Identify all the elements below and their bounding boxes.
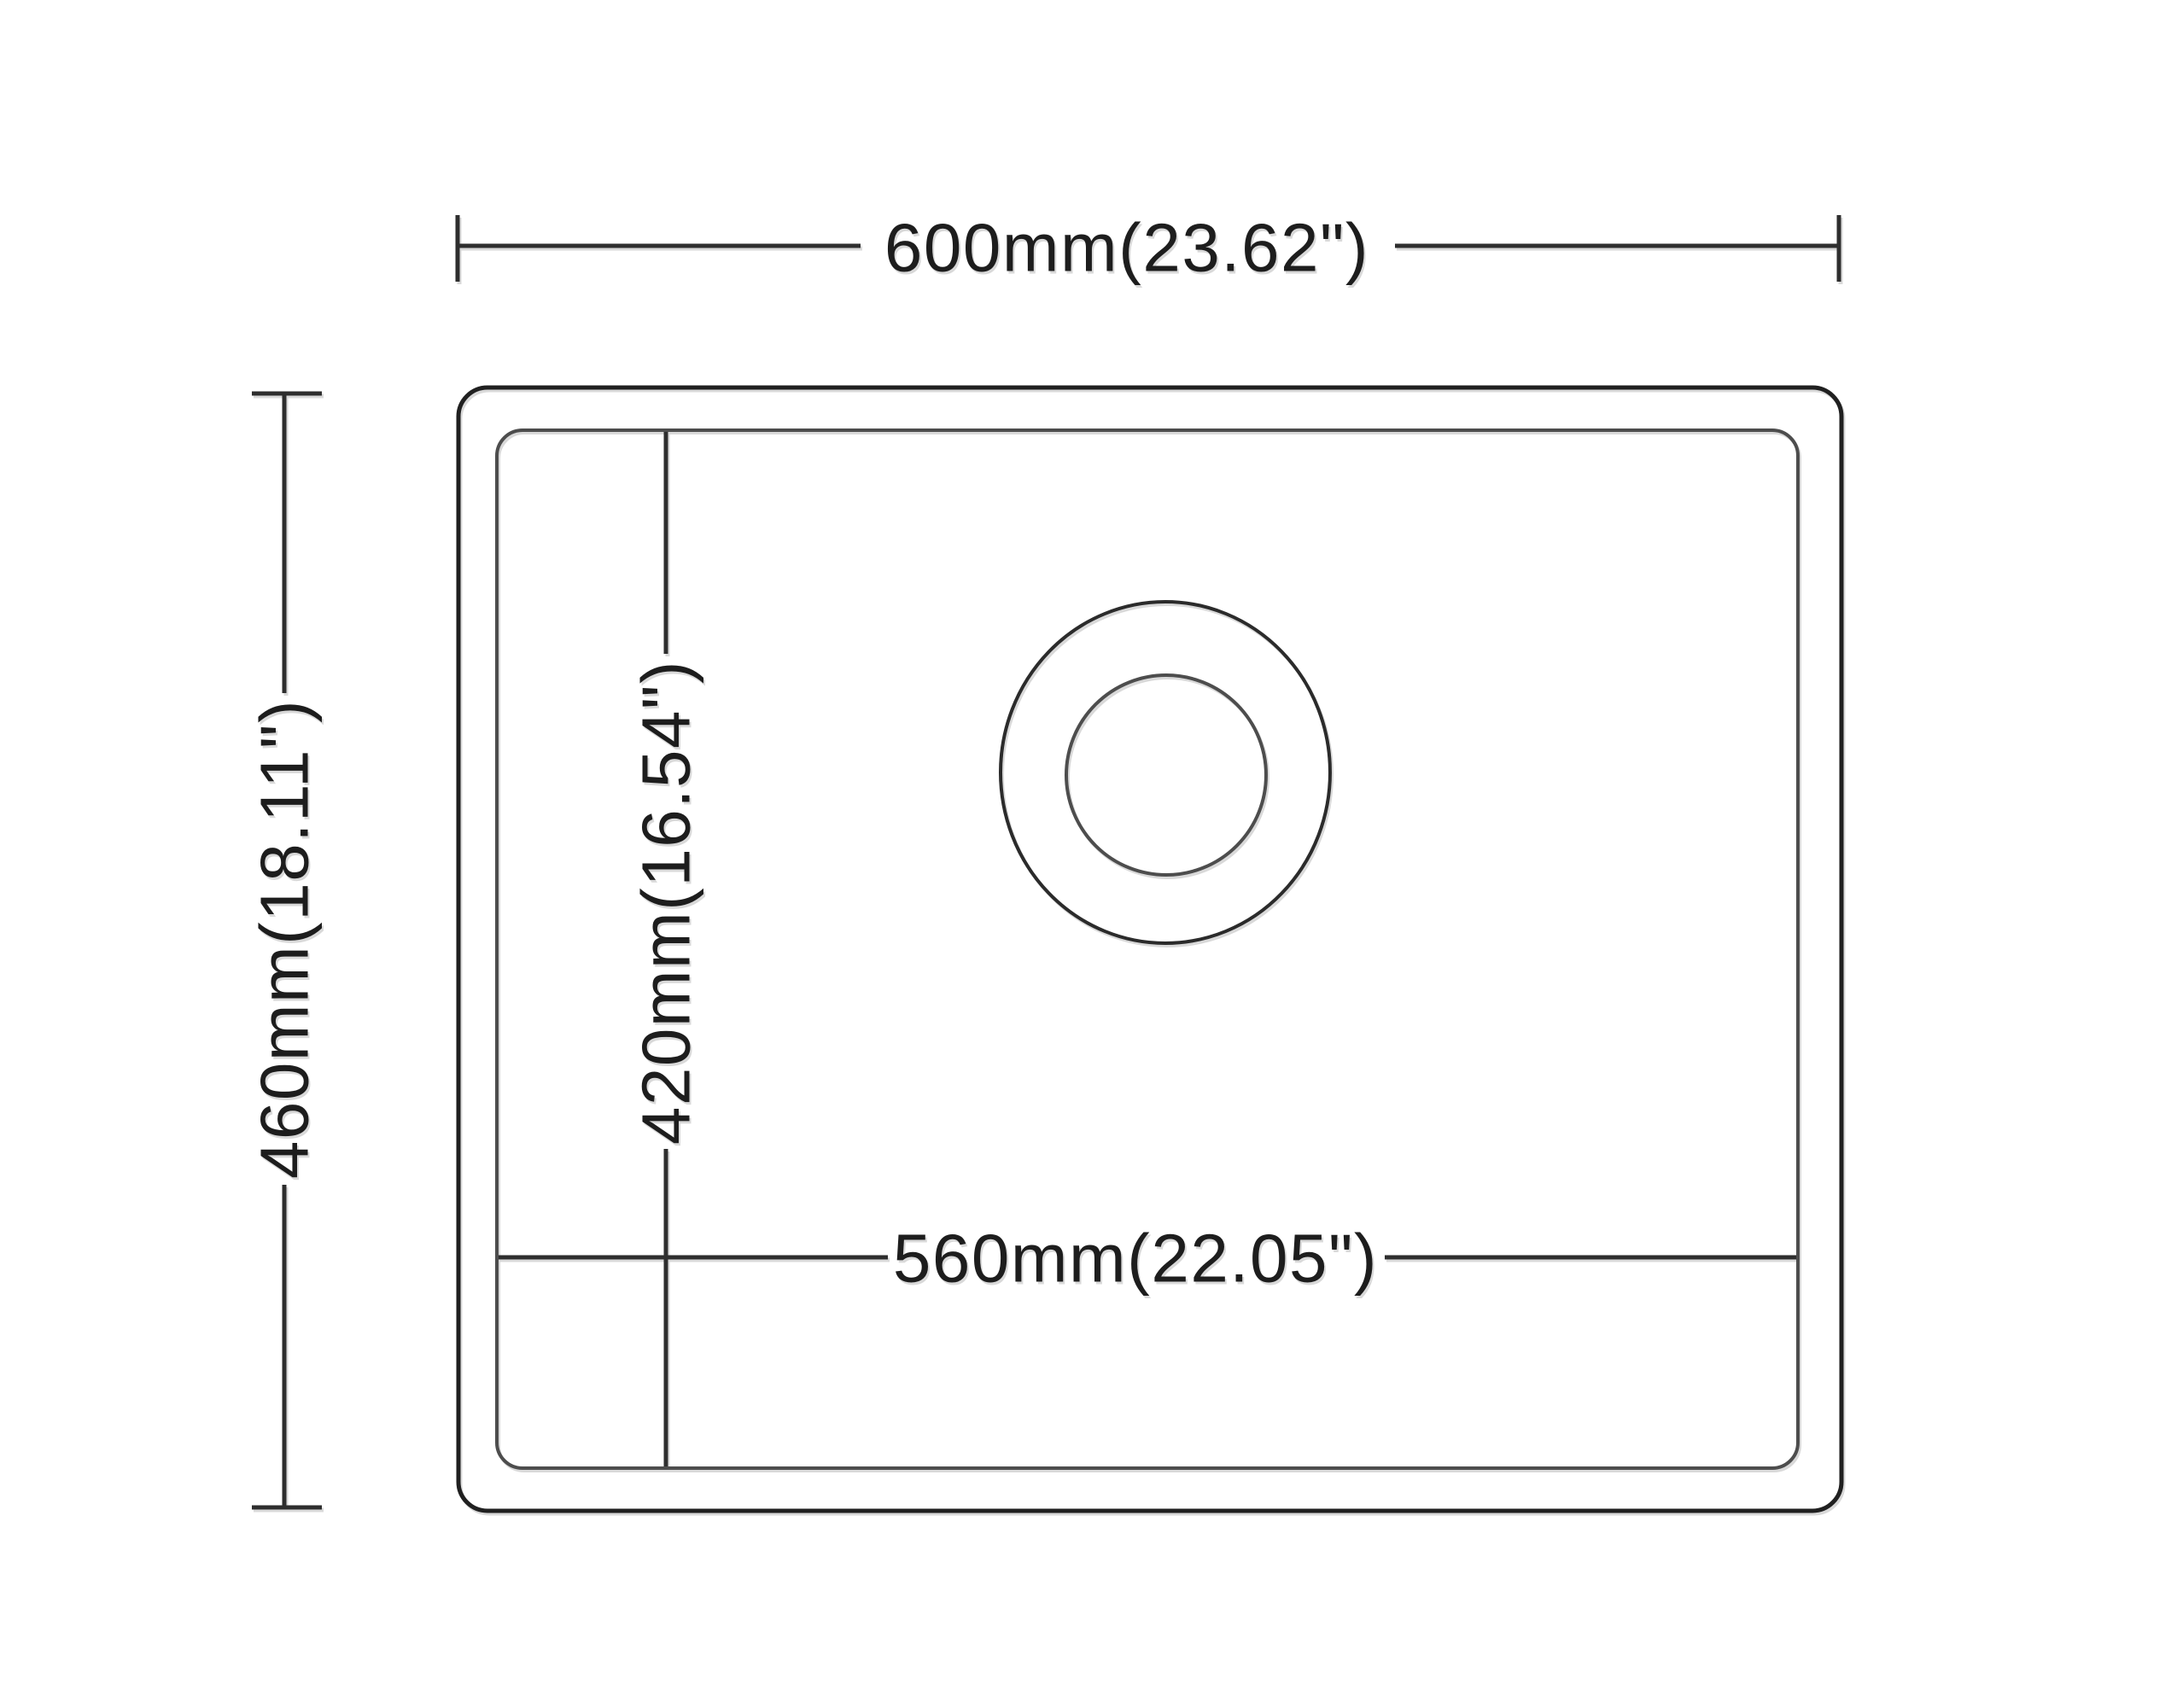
bowl-width-dim-label: 560mm(22.05") (893, 1221, 1378, 1297)
drain-inner-circle (1066, 675, 1266, 875)
drain-outer-circle (1001, 602, 1330, 943)
bowl-depth-dim-label: 420mm(16.54") (628, 660, 704, 1145)
overall-width-dim-label: 600mm(23.62") (884, 210, 1369, 286)
drawing-canvas: 600mm(23.62") 460mm(18.11") 420mm(16.54"… (0, 0, 2171, 1708)
sink-dimension-diagram: 600mm(23.62") 460mm(18.11") 420mm(16.54"… (0, 0, 2171, 1708)
overall-depth-dim-label: 460mm(18.11") (247, 699, 323, 1179)
